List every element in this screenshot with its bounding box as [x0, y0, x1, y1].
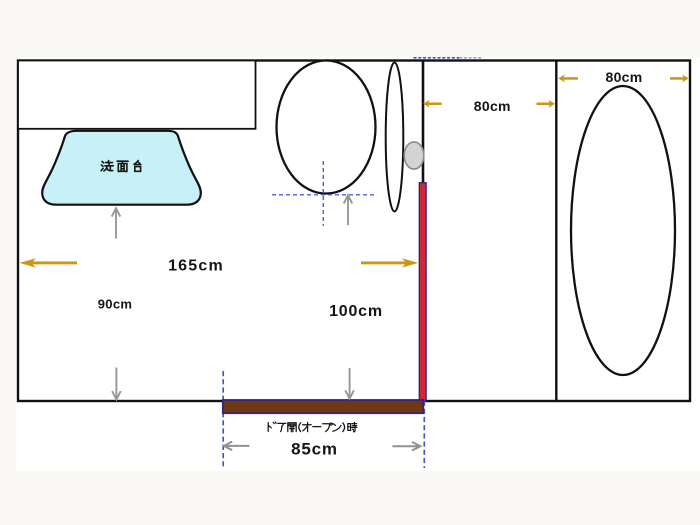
- svg-text:165cm: 165cm: [168, 258, 224, 275]
- svg-text:90cm: 90cm: [98, 296, 132, 311]
- svg-text:85cm: 85cm: [291, 439, 338, 458]
- svg-text:100cm: 100cm: [329, 303, 383, 320]
- svg-text:80cm: 80cm: [474, 98, 511, 114]
- svg-text:80cm: 80cm: [605, 69, 642, 85]
